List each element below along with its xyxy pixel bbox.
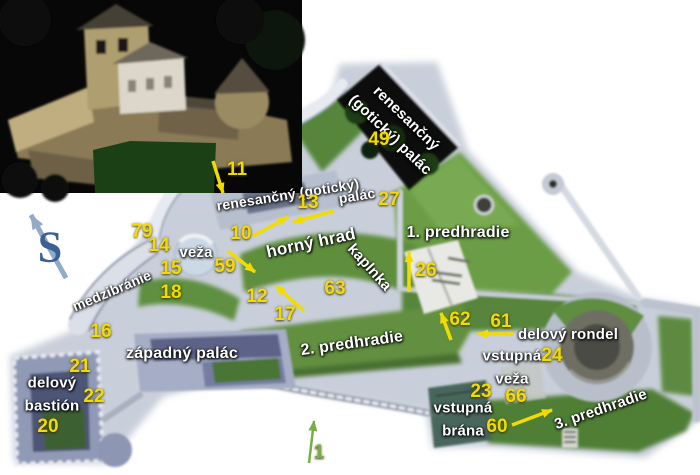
annotation-arrows-layer (0, 0, 700, 475)
compass-letter: S (38, 222, 62, 273)
annotation-arrow (228, 251, 255, 272)
annotation-arrow (293, 211, 334, 222)
annotation-arrow (253, 217, 288, 236)
annotation-arrow (512, 410, 552, 425)
annotation-arrow (213, 161, 223, 193)
castle-site-plan: renesančný (gotický) palácrenesančný (go… (0, 0, 700, 475)
annotation-arrow (441, 313, 451, 340)
annotation-arrow (276, 286, 304, 311)
annotation-arrow (309, 421, 314, 463)
